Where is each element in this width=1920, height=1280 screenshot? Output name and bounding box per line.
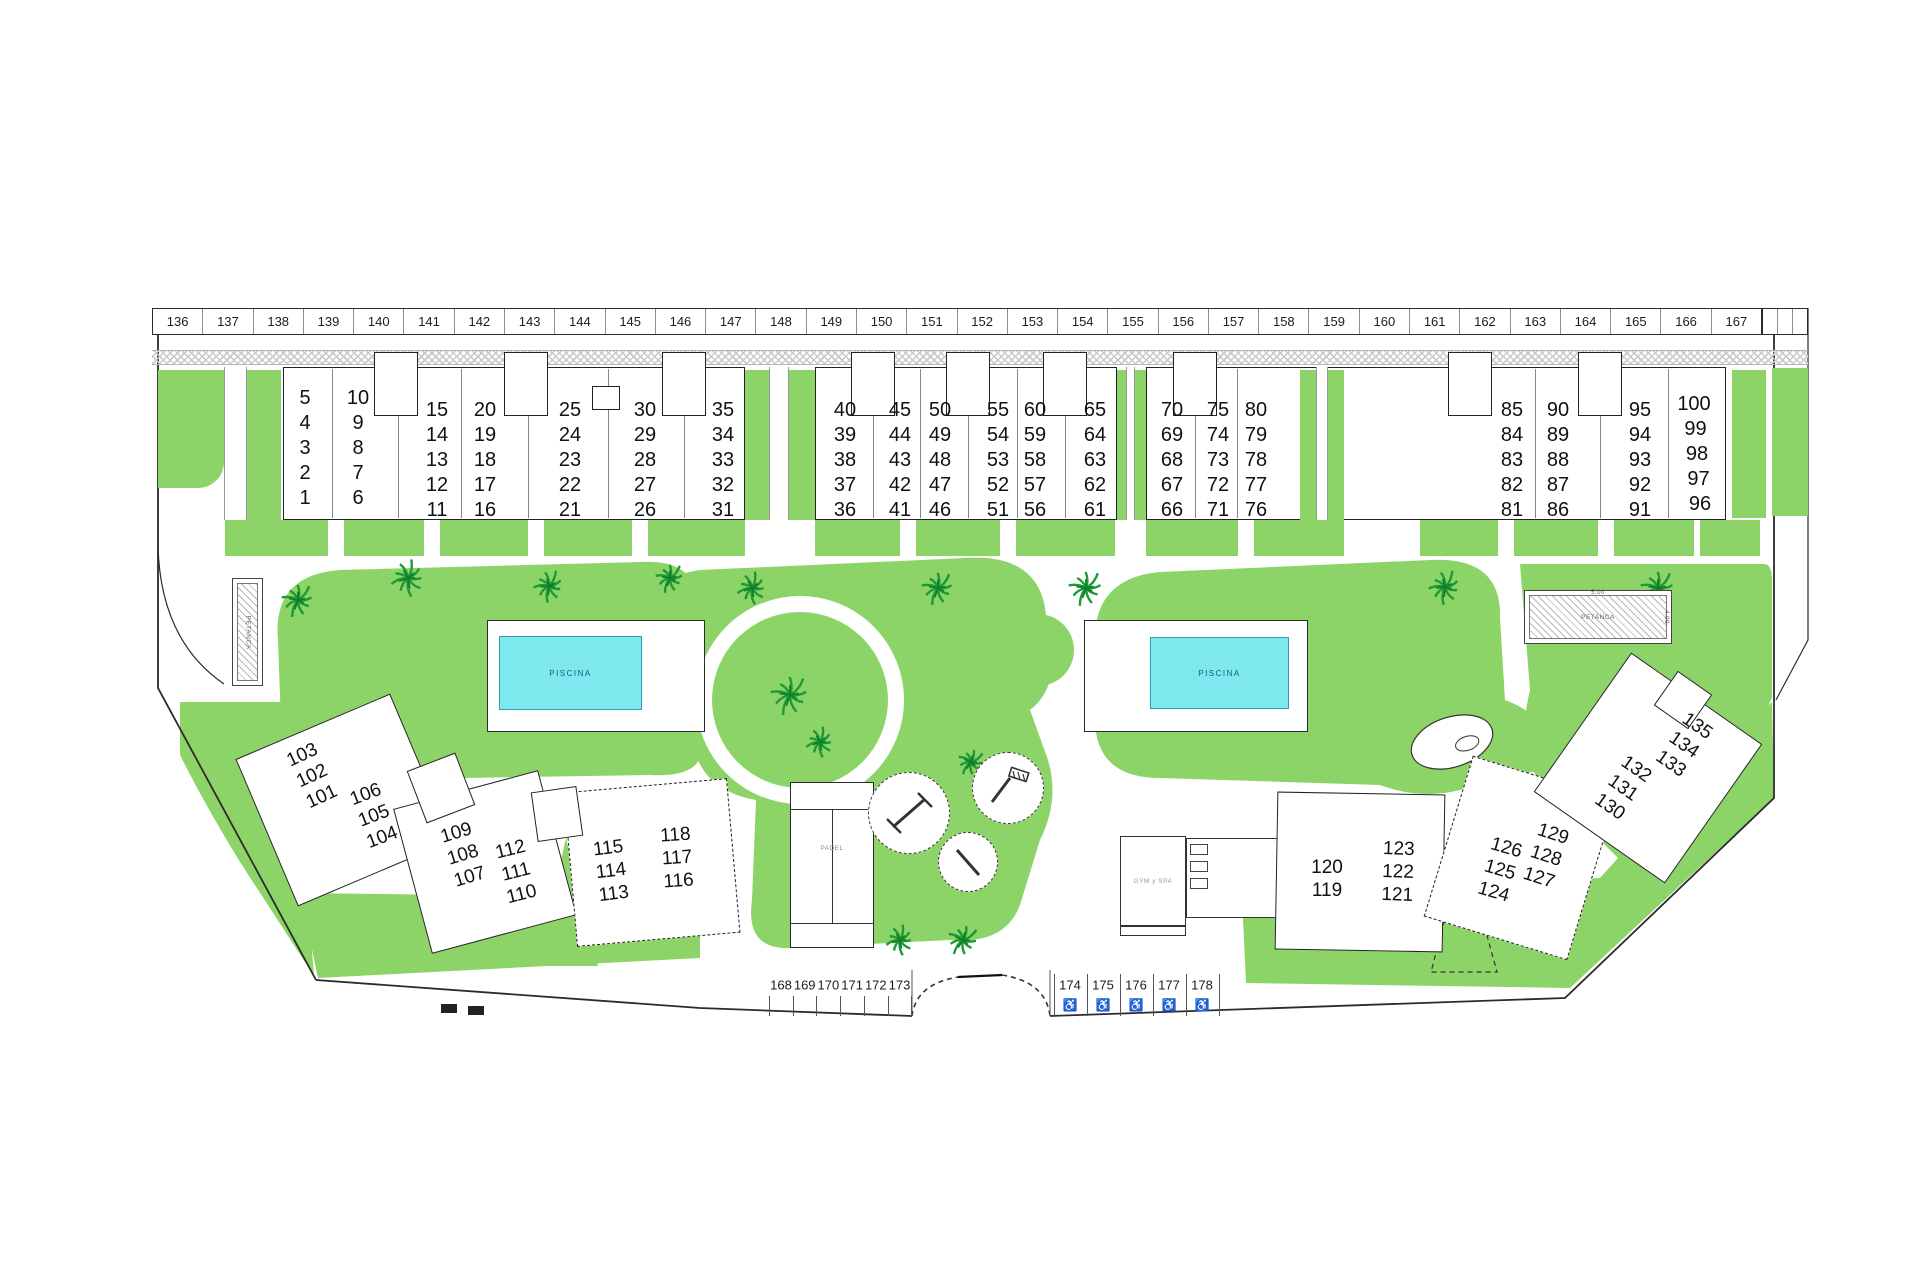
table-icon bbox=[1190, 861, 1208, 872]
wheelchair-icon: ♿ bbox=[1096, 998, 1111, 1012]
unit-column: 9594939291 bbox=[1629, 398, 1651, 523]
unit-number: 24 bbox=[559, 423, 581, 448]
stairwell bbox=[592, 386, 620, 410]
petanca-court-west: PETANCA bbox=[232, 578, 263, 686]
terrace-garden bbox=[1514, 520, 1598, 556]
wheelchair-icon: ♿ bbox=[1129, 998, 1144, 1012]
unit-column: 2524232221 bbox=[559, 398, 581, 523]
unit-number: 68 bbox=[1161, 448, 1183, 473]
unit-number: 29 bbox=[634, 423, 656, 448]
unit-number: 17 bbox=[474, 473, 496, 498]
parking-space-label: 176 bbox=[1125, 978, 1147, 993]
slide-icon bbox=[982, 762, 1034, 814]
unit-number: 64 bbox=[1084, 423, 1106, 448]
unit-number: 84 bbox=[1501, 423, 1523, 448]
parking-space-label: 173 bbox=[889, 978, 911, 993]
unit-column: 8079787776 bbox=[1245, 398, 1267, 523]
padel-label: PADEL bbox=[820, 845, 843, 852]
green-margin bbox=[1772, 368, 1808, 516]
parking-space-label: 166 bbox=[1661, 309, 1711, 334]
parking-space-label: 174 bbox=[1059, 978, 1081, 993]
parking-space-label: 150 bbox=[857, 309, 907, 334]
terrace-garden bbox=[440, 520, 528, 556]
stairwell bbox=[374, 352, 418, 416]
parking-space-label: 175 bbox=[1092, 978, 1114, 993]
unit-column: 6059585756 bbox=[1024, 398, 1046, 523]
unit-number: 121 bbox=[1381, 883, 1413, 907]
terrace-garden bbox=[344, 520, 424, 556]
terrace-garden bbox=[544, 520, 632, 556]
parking-space-label: 141 bbox=[404, 309, 454, 334]
unit-number: 78 bbox=[1245, 448, 1267, 473]
unit-column: 1514131211 bbox=[426, 398, 448, 523]
parking-divider bbox=[769, 996, 770, 1016]
unit-number: 72 bbox=[1207, 473, 1229, 498]
residential-building bbox=[1275, 792, 1446, 953]
terrace-garden bbox=[1254, 520, 1344, 556]
terrace-garden bbox=[1016, 520, 1115, 556]
parking-space-label: 164 bbox=[1561, 309, 1611, 334]
petanca-height-dim: 4.00 bbox=[1663, 610, 1669, 624]
site-plan: 1361371381391401411421431441451461471481… bbox=[0, 0, 1920, 1280]
unit-number: 43 bbox=[889, 448, 911, 473]
unit-number: 96 bbox=[1689, 492, 1711, 517]
unit-column: 3534333231 bbox=[712, 398, 734, 523]
unit-number: 90 bbox=[1547, 398, 1569, 423]
footpath bbox=[769, 367, 789, 520]
green-margin bbox=[158, 370, 224, 488]
unit-divider bbox=[1668, 369, 1669, 518]
table-icon bbox=[1190, 878, 1208, 889]
footpath bbox=[1316, 367, 1328, 520]
parking-divider bbox=[1219, 974, 1220, 1016]
unit-number: 18 bbox=[474, 448, 496, 473]
unit-number: 80 bbox=[1245, 398, 1267, 423]
unit-number: 93 bbox=[1629, 448, 1651, 473]
gym-spa-label: GYM y SPA bbox=[1134, 878, 1173, 885]
unit-number: 3 bbox=[299, 436, 310, 461]
unit-number: 22 bbox=[559, 473, 581, 498]
unit-number: 94 bbox=[1629, 423, 1651, 448]
unit-number: 40 bbox=[834, 398, 856, 423]
unit-column: 6564636261 bbox=[1084, 398, 1106, 523]
unit-number: 12 bbox=[426, 473, 448, 498]
pool-east: PISCINA bbox=[1150, 637, 1289, 709]
unit-column: 120119 bbox=[1311, 856, 1343, 902]
green-margin bbox=[247, 370, 281, 520]
parking-space-label: 154 bbox=[1058, 309, 1108, 334]
unit-number: 8 bbox=[352, 436, 363, 461]
unit-number: 38 bbox=[834, 448, 856, 473]
unit-number: 117 bbox=[661, 845, 693, 870]
terrace-garden bbox=[1614, 520, 1694, 556]
parking-space-label: 165 bbox=[1611, 309, 1661, 334]
pool-west-label: PISCINA bbox=[549, 669, 592, 678]
unit-number: 30 bbox=[634, 398, 656, 423]
unit-number: 99 bbox=[1684, 417, 1706, 442]
parking-space-label: 158 bbox=[1259, 309, 1309, 334]
unit-column: 4039383736 bbox=[834, 398, 856, 523]
unit-number: 53 bbox=[987, 448, 1009, 473]
lawn-small bbox=[1002, 614, 1074, 686]
unit-number: 70 bbox=[1161, 398, 1183, 423]
balance-beam-icon bbox=[948, 842, 988, 882]
footpath bbox=[1126, 367, 1135, 520]
unit-number: 10 bbox=[347, 386, 369, 411]
parking-space-label: 177 bbox=[1158, 978, 1180, 993]
unit-number: 7 bbox=[352, 461, 363, 486]
unit-number: 75 bbox=[1207, 398, 1229, 423]
unit-number: 37 bbox=[834, 473, 856, 498]
pool-west: PISCINA bbox=[499, 636, 642, 710]
unit-number: 63 bbox=[1084, 448, 1106, 473]
parking-space-label: 170 bbox=[818, 978, 840, 993]
unit-number: 69 bbox=[1161, 423, 1183, 448]
unit-number: 44 bbox=[889, 423, 911, 448]
unit-number: 122 bbox=[1382, 860, 1414, 884]
residential-building bbox=[531, 786, 584, 842]
unit-number: 82 bbox=[1501, 473, 1523, 498]
unit-number: 23 bbox=[559, 448, 581, 473]
parking-space-label: 152 bbox=[958, 309, 1008, 334]
unit-divider bbox=[1017, 369, 1018, 518]
unit-number: 79 bbox=[1245, 423, 1267, 448]
stairwell bbox=[1448, 352, 1492, 416]
petanca-east-label: PETANCA bbox=[1581, 614, 1615, 621]
unit-number: 74 bbox=[1207, 423, 1229, 448]
parking-divider bbox=[1054, 974, 1055, 1016]
unit-number: 28 bbox=[634, 448, 656, 473]
unit-number: 113 bbox=[597, 881, 630, 908]
unit-number: 85 bbox=[1501, 398, 1523, 423]
footpath bbox=[224, 367, 247, 520]
unit-number: 50 bbox=[929, 398, 951, 423]
parking-space-label: 139 bbox=[304, 309, 354, 334]
unit-number: 33 bbox=[712, 448, 734, 473]
unit-number: 98 bbox=[1686, 442, 1708, 467]
unit-column: 5049484746 bbox=[929, 398, 951, 523]
unit-divider bbox=[461, 369, 462, 518]
palm-tree-icon bbox=[1069, 572, 1101, 606]
unit-column: 3029282726 bbox=[634, 398, 656, 523]
parking-space-label: 151 bbox=[907, 309, 957, 334]
unit-number: 2 bbox=[299, 461, 310, 486]
green-margin bbox=[1732, 370, 1766, 518]
unit-column: 10099989796 bbox=[1677, 392, 1711, 517]
unit-number: 62 bbox=[1084, 473, 1106, 498]
unit-number: 20 bbox=[474, 398, 496, 423]
seesaw-icon bbox=[881, 785, 937, 841]
entrance-arc-left bbox=[912, 977, 958, 1016]
padel-court: PADEL bbox=[790, 782, 874, 948]
unit-column: 123122121 bbox=[1381, 837, 1415, 907]
unit-number: 52 bbox=[987, 473, 1009, 498]
unit-column: 5554535251 bbox=[987, 398, 1009, 523]
entrance-gate bbox=[958, 975, 1002, 977]
unit-number: 5 bbox=[299, 386, 310, 411]
terrace-garden bbox=[648, 520, 745, 556]
unit-number: 59 bbox=[1024, 423, 1046, 448]
unit-number: 57 bbox=[1024, 473, 1046, 498]
unit-number: 65 bbox=[1084, 398, 1106, 423]
unit-number: 9 bbox=[352, 411, 363, 436]
parking-space-label: 178 bbox=[1191, 978, 1213, 993]
parking-space-label: 145 bbox=[606, 309, 656, 334]
parking-space-label: 171 bbox=[841, 978, 863, 993]
wheelchair-icon: ♿ bbox=[1063, 998, 1078, 1012]
gym-base bbox=[1120, 926, 1186, 936]
unit-number: 25 bbox=[559, 398, 581, 423]
parking-space-label: 137 bbox=[203, 309, 253, 334]
unit-column: 54321 bbox=[299, 386, 310, 511]
parking-space-label: 172 bbox=[865, 978, 887, 993]
gym-spa-building: GYM y SPA bbox=[1120, 836, 1186, 926]
unit-number: 45 bbox=[889, 398, 911, 423]
unit-number: 49 bbox=[929, 423, 951, 448]
terrace-garden bbox=[1146, 520, 1238, 556]
unit-number: 120 bbox=[1311, 856, 1343, 879]
parking-space-label: 144 bbox=[555, 309, 605, 334]
parking-space-label: 161 bbox=[1410, 309, 1460, 334]
unit-number: 6 bbox=[352, 486, 363, 511]
unit-column: 118117116 bbox=[659, 823, 694, 894]
unit-number: 55 bbox=[987, 398, 1009, 423]
parking-divider bbox=[840, 996, 841, 1016]
unit-column: 2019181716 bbox=[474, 398, 496, 523]
parking-space-label: 153 bbox=[1008, 309, 1058, 334]
parking-space-label: 138 bbox=[254, 309, 304, 334]
unit-number: 73 bbox=[1207, 448, 1229, 473]
unit-number: 15 bbox=[426, 398, 448, 423]
unit-number: 27 bbox=[634, 473, 656, 498]
parking-space-label: 146 bbox=[656, 309, 706, 334]
parking-divider bbox=[864, 996, 865, 1016]
parking-space-label: 156 bbox=[1159, 309, 1209, 334]
parking-strip-end-cell bbox=[1763, 309, 1778, 334]
terrace-garden bbox=[1700, 520, 1760, 556]
petanca-west-label: PETANCA bbox=[244, 615, 251, 649]
gate-mark bbox=[441, 1004, 457, 1013]
unit-number: 97 bbox=[1687, 467, 1709, 492]
parking-space-label: 162 bbox=[1460, 309, 1510, 334]
parking-divider bbox=[911, 996, 912, 1016]
unit-number: 100 bbox=[1677, 392, 1710, 417]
stairwell bbox=[662, 352, 706, 416]
unit-number: 19 bbox=[474, 423, 496, 448]
petanca-width-dim: 5.00 bbox=[1591, 590, 1605, 596]
stairwell bbox=[504, 352, 548, 416]
parking-strip-end-cell bbox=[1778, 309, 1793, 334]
unit-number: 35 bbox=[712, 398, 734, 423]
parking-space-label: 147 bbox=[706, 309, 756, 334]
parking-space-label: 169 bbox=[794, 978, 816, 993]
unit-column: 7069686766 bbox=[1161, 398, 1183, 523]
unit-number: 88 bbox=[1547, 448, 1569, 473]
unit-divider bbox=[1535, 369, 1536, 518]
unit-number: 123 bbox=[1383, 837, 1415, 861]
unit-number: 32 bbox=[712, 473, 734, 498]
parking-space-label: 159 bbox=[1309, 309, 1359, 334]
boundary-left-curve bbox=[158, 545, 224, 684]
unit-number: 83 bbox=[1501, 448, 1523, 473]
unit-column: 7574737271 bbox=[1207, 398, 1229, 523]
unit-column: 9089888786 bbox=[1547, 398, 1569, 523]
parking-space-label: 143 bbox=[505, 309, 555, 334]
terrace-garden bbox=[815, 520, 900, 556]
parking-space-label: 168 bbox=[770, 978, 792, 993]
unit-number: 13 bbox=[426, 448, 448, 473]
unit-number: 118 bbox=[659, 823, 691, 848]
parking-strip-top: 1361371381391401411421431441451461471481… bbox=[152, 308, 1762, 335]
unit-number: 47 bbox=[929, 473, 951, 498]
unit-column: 8584838281 bbox=[1501, 398, 1523, 523]
parking-divider bbox=[1087, 974, 1088, 1016]
parking-divider bbox=[1186, 974, 1187, 1016]
stairwell bbox=[1043, 352, 1087, 416]
unit-number: 116 bbox=[663, 868, 695, 893]
parking-space-label: 142 bbox=[455, 309, 505, 334]
parking-space-label: 167 bbox=[1712, 309, 1761, 334]
unit-number: 54 bbox=[987, 423, 1009, 448]
unit-column: 109876 bbox=[347, 386, 369, 511]
terrace-garden bbox=[225, 520, 328, 556]
residential-building bbox=[564, 778, 741, 947]
entrance-arc-right bbox=[1002, 975, 1050, 1016]
parking-divider bbox=[1120, 974, 1121, 1016]
parking-divider bbox=[888, 996, 889, 1016]
parking-strip-end-cell bbox=[1793, 309, 1807, 334]
parking-space-label: 136 bbox=[153, 309, 203, 334]
petanca-court-east: PETANCA 5.00 4.00 bbox=[1524, 590, 1672, 644]
playground-circle-2 bbox=[938, 832, 998, 892]
unit-number: 92 bbox=[1629, 473, 1651, 498]
wheelchair-icon: ♿ bbox=[1195, 998, 1210, 1012]
unit-number: 87 bbox=[1547, 473, 1569, 498]
unit-number: 42 bbox=[889, 473, 911, 498]
unit-divider bbox=[332, 369, 333, 518]
unit-number: 119 bbox=[1312, 879, 1342, 902]
unit-divider bbox=[1237, 369, 1238, 518]
terrace-garden bbox=[916, 520, 1000, 556]
unit-number: 67 bbox=[1161, 473, 1183, 498]
parking-space-label: 149 bbox=[807, 309, 857, 334]
unit-number: 58 bbox=[1024, 448, 1046, 473]
unit-column: 4544434241 bbox=[889, 398, 911, 523]
pool-east-label: PISCINA bbox=[1198, 669, 1241, 678]
parking-divider bbox=[793, 996, 794, 1016]
stairwell bbox=[1578, 352, 1622, 416]
table-icon bbox=[1190, 844, 1208, 855]
unit-number: 1 bbox=[299, 486, 310, 511]
parking-space-label: 163 bbox=[1511, 309, 1561, 334]
unit-number: 60 bbox=[1024, 398, 1046, 423]
unit-number: 89 bbox=[1547, 423, 1569, 448]
parking-space-label: 148 bbox=[756, 309, 806, 334]
parking-divider bbox=[1153, 974, 1154, 1016]
unit-number: 14 bbox=[426, 423, 448, 448]
unit-number: 39 bbox=[834, 423, 856, 448]
unit-number: 95 bbox=[1629, 398, 1651, 423]
terrace-garden bbox=[1420, 520, 1498, 556]
gate-mark bbox=[468, 1006, 484, 1015]
unit-divider bbox=[920, 369, 921, 518]
lawn-circle bbox=[712, 612, 888, 788]
parking-space-label: 157 bbox=[1209, 309, 1259, 334]
playground-circle-3 bbox=[972, 752, 1044, 824]
unit-number: 48 bbox=[929, 448, 951, 473]
unit-number: 34 bbox=[712, 423, 734, 448]
parking-space-label: 140 bbox=[354, 309, 404, 334]
unit-number: 4 bbox=[299, 411, 310, 436]
stairwell bbox=[946, 352, 990, 416]
wheelchair-icon: ♿ bbox=[1162, 998, 1177, 1012]
unit-number: 77 bbox=[1245, 473, 1267, 498]
parking-strip-end bbox=[1762, 308, 1808, 335]
parking-space-label: 160 bbox=[1360, 309, 1410, 334]
parking-divider bbox=[816, 996, 817, 1016]
parking-space-label: 155 bbox=[1108, 309, 1158, 334]
playground-circle-1 bbox=[868, 772, 950, 854]
